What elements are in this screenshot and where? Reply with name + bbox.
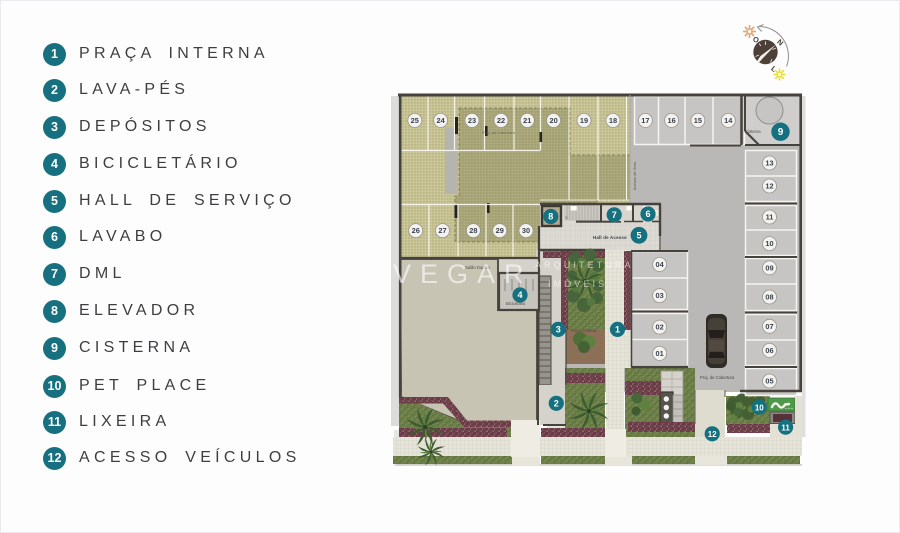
svg-text:21: 21 <box>523 116 531 125</box>
svg-text:24: 24 <box>436 116 445 125</box>
svg-text:18: 18 <box>609 116 617 125</box>
svg-text:8: 8 <box>548 212 553 222</box>
svg-text:3: 3 <box>556 325 561 335</box>
svg-text:10: 10 <box>755 403 764 412</box>
svg-text:12: 12 <box>708 430 717 439</box>
svg-text:05: 05 <box>765 377 773 386</box>
svg-text:1: 1 <box>615 325 620 335</box>
svg-text:ARQUITETURA: ARQUITETURA <box>535 260 634 270</box>
svg-text:Proj. de Cobertura: Proj. de Cobertura <box>700 375 735 380</box>
svg-text:23: 23 <box>468 116 476 125</box>
svg-text:20: 20 <box>549 116 557 125</box>
svg-text:Praça Interna: Praça Interna <box>571 328 597 333</box>
svg-text:22: 22 <box>497 116 505 125</box>
svg-text:Hall de Acesso: Hall de Acesso <box>593 235 627 240</box>
svg-text:IMÓVEIS: IMÓVEIS <box>548 279 607 289</box>
svg-text:26: 26 <box>412 226 420 235</box>
svg-text:S: S <box>565 215 568 220</box>
svg-text:9: 9 <box>778 127 784 138</box>
svg-text:04: 04 <box>655 260 664 269</box>
svg-text:03: 03 <box>655 291 663 300</box>
svg-text:19: 19 <box>580 116 588 125</box>
svg-text:4: 4 <box>517 290 522 300</box>
svg-text:11: 11 <box>766 213 774 222</box>
svg-text:6: 6 <box>645 209 650 219</box>
svg-text:17: 17 <box>641 116 649 125</box>
svg-text:Proj. da Cobertura: Proj. da Cobertura <box>482 130 515 135</box>
svg-text:30: 30 <box>522 226 530 235</box>
svg-text:2: 2 <box>554 399 559 409</box>
svg-text:02: 02 <box>655 323 663 332</box>
svg-text:15: 15 <box>694 116 702 125</box>
svg-text:27: 27 <box>438 226 446 235</box>
svg-text:Cisterna: Cisterna <box>745 129 761 134</box>
svg-text:7: 7 <box>612 210 617 220</box>
svg-text:10: 10 <box>765 239 773 248</box>
svg-text:29: 29 <box>496 226 504 235</box>
svg-text:12: 12 <box>765 182 773 191</box>
svg-text:01: 01 <box>655 349 663 358</box>
svg-text:28: 28 <box>469 226 477 235</box>
svg-text:Acesso de Serv.: Acesso de Serv. <box>632 161 637 190</box>
svg-text:5: 5 <box>636 231 641 241</box>
svg-text:06: 06 <box>765 346 773 355</box>
svg-text:11: 11 <box>781 423 790 432</box>
svg-text:25: 25 <box>411 116 419 125</box>
svg-text:N: N <box>775 37 785 47</box>
svg-text:14: 14 <box>724 116 733 125</box>
svg-text:VEGAR: VEGAR <box>393 259 533 289</box>
svg-text:09: 09 <box>765 263 773 272</box>
svg-text:08: 08 <box>765 293 773 302</box>
svg-text:16: 16 <box>667 116 675 125</box>
svg-text:13: 13 <box>765 159 773 168</box>
svg-text:07: 07 <box>765 322 773 331</box>
